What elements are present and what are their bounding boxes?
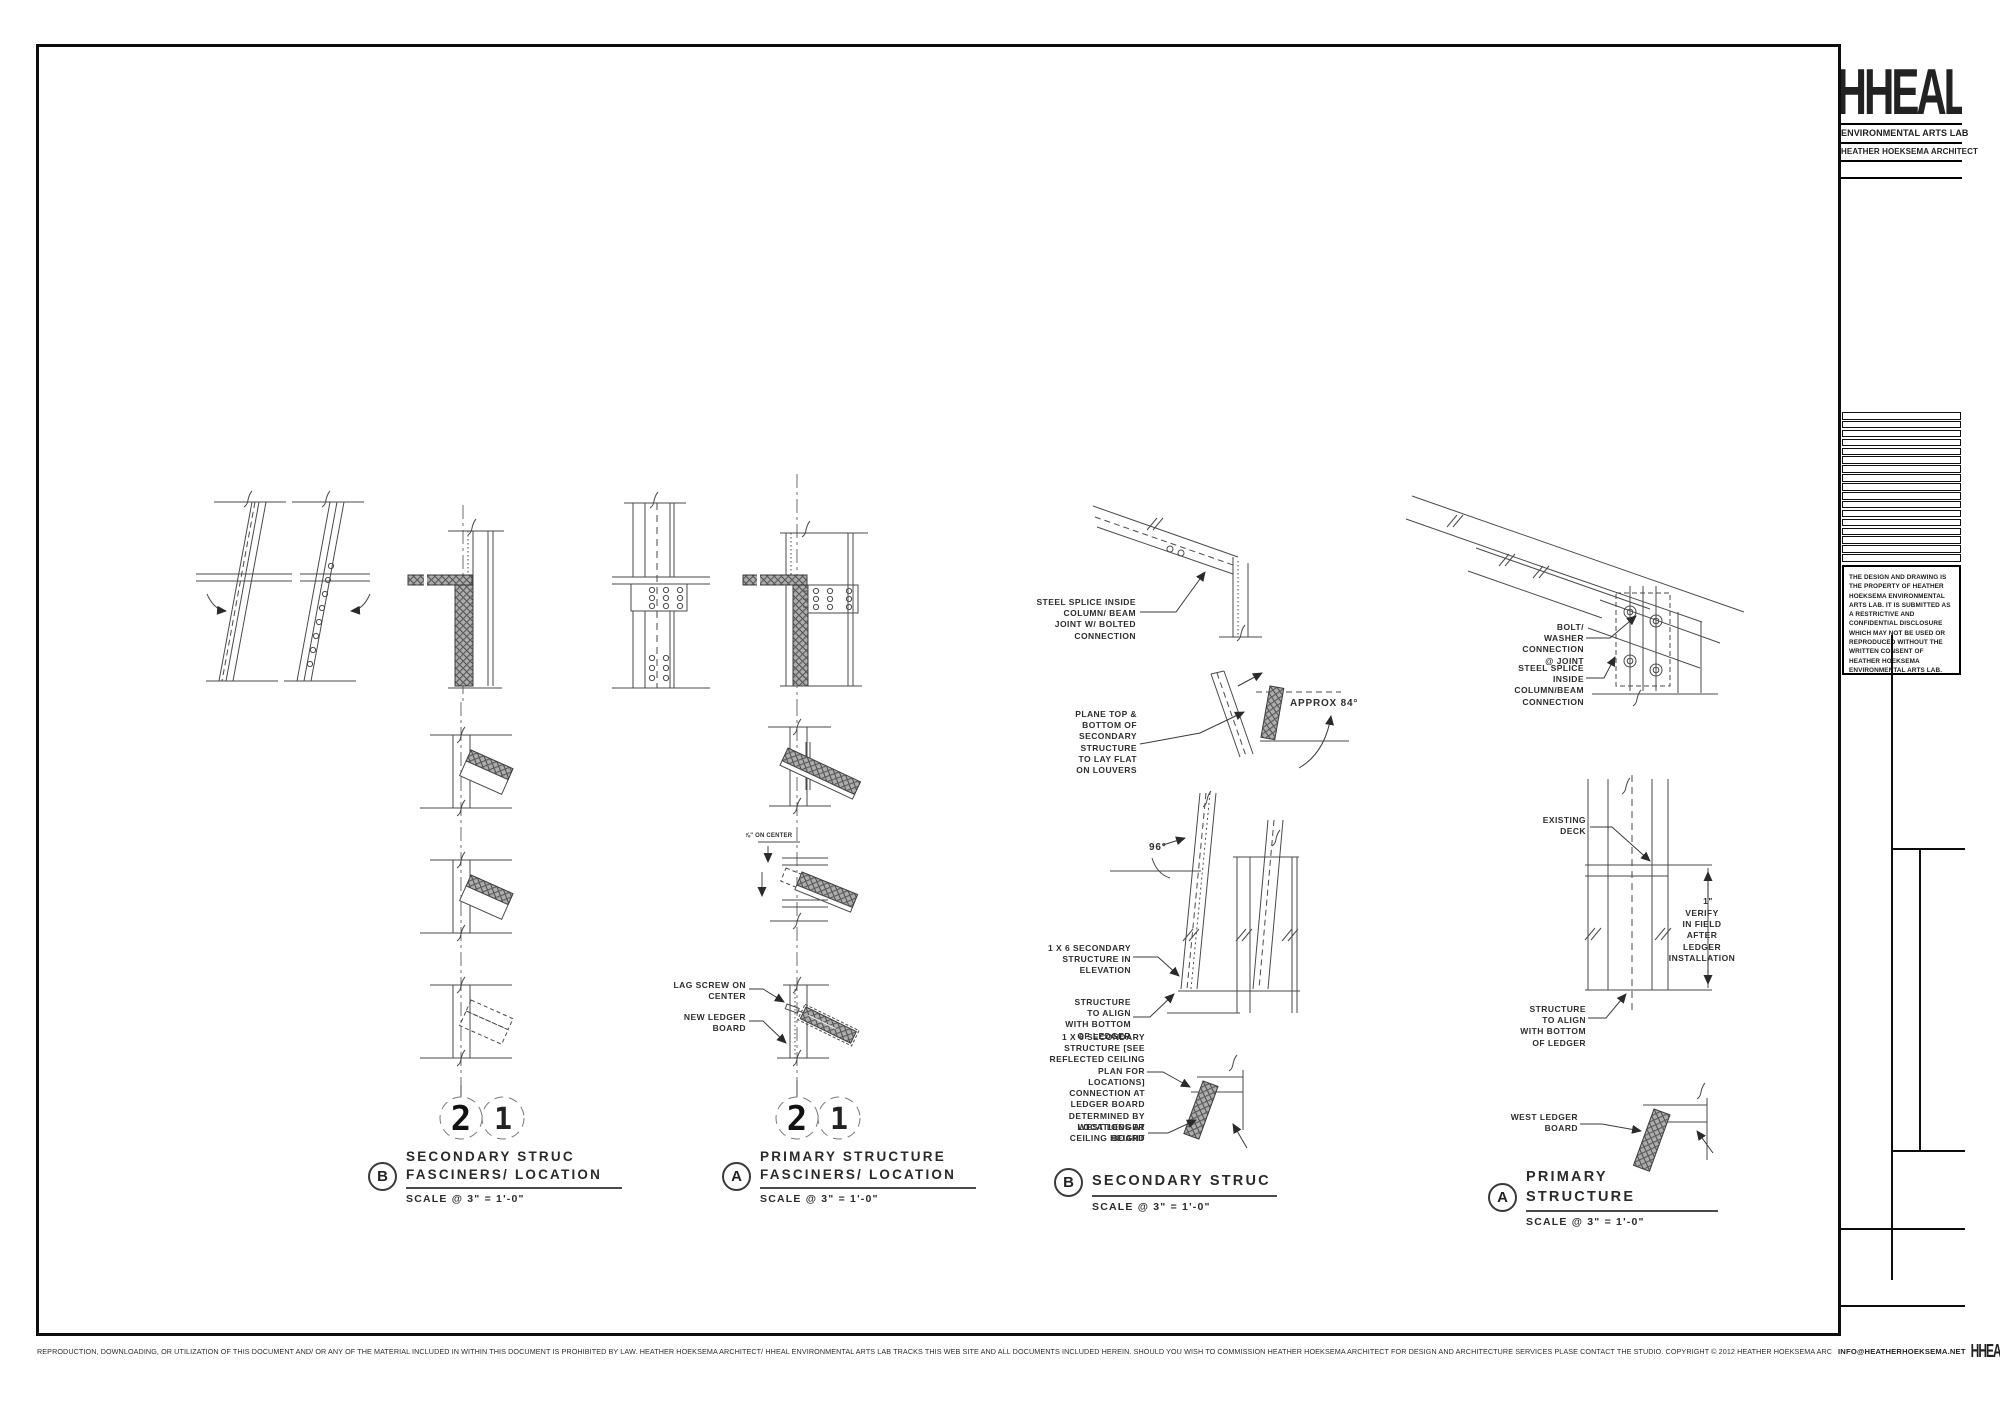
panel-scale-text: SCALE @ 3" = 1'-0": [760, 1193, 976, 1205]
annotation-1-inch-dim: 1": [1692, 896, 1724, 907]
titleblock-divider: [1919, 850, 1921, 1152]
revision-row: [1842, 501, 1961, 509]
revision-row: [1842, 465, 1961, 473]
titleblock-divider: [1841, 1228, 1965, 1230]
drawing-sheet: 2 1: [0, 0, 2000, 1410]
panel-title-text: SECONDARY STRUC FASCINERS/ LOCATION: [406, 1148, 622, 1189]
footer-logo: HHEAL: [1971, 1341, 2000, 1362]
panel-title-text: SECONDARY STRUC: [1092, 1172, 1277, 1197]
titleblock-divider: [1891, 848, 1965, 850]
panel-scale-text: SCALE @ 3" = 1'-0": [1092, 1201, 1277, 1213]
panel-scale-text: SCALE @ 3" = 1'-0": [406, 1193, 622, 1205]
panel1-bubble-1: 1: [494, 1102, 512, 1137]
panel2-linework: 2 1: [612, 474, 868, 1139]
revision-row: [1842, 474, 1961, 482]
annotation-96-degrees: 96°: [1149, 841, 1189, 854]
annotation-west-ledger-p3: WEST LEDGER BOARD: [1070, 1122, 1145, 1144]
revision-row: [1842, 439, 1961, 447]
annotation-lag-screw: LAG SCREW ON CENTER: [640, 980, 746, 1002]
annotation-steel-splice-joint: STEEL SPLICE INSIDE COLUMN/ BEAM JOINT W…: [1018, 597, 1136, 642]
panel-title-primary-structure: A PRIMARY STRUCTURE SCALE @ 3" = 1'-0": [1488, 1168, 1718, 1228]
footer-legal-text: REPRODUCTION, DOWNLOADING, OR UTILIZATIO…: [37, 1347, 1832, 1356]
revision-row: [1842, 492, 1961, 500]
revision-row: [1842, 456, 1961, 464]
panel-title-secondary-fasciners: B SECONDARY STRUC FASCINERS/ LOCATION SC…: [368, 1148, 622, 1205]
ref-letter: A: [731, 1168, 742, 1185]
annotation-new-ledger-board: NEW LEDGER BOARD: [640, 1012, 746, 1034]
ref-letter: A: [1497, 1189, 1508, 1206]
annotation-existing-deck: EXISTING DECK: [1528, 815, 1586, 837]
panel-title-text: PRIMARY STRUCTURE FASCINERS/ LOCATION: [760, 1148, 976, 1189]
footer-email: INFO@HEATHERHOEKSEMA.NET: [1838, 1347, 1966, 1356]
detail-ref-circle-a1: A: [722, 1162, 751, 1191]
panel-title-text: PRIMARY STRUCTURE: [1526, 1168, 1718, 1212]
detail-ref-circle-a2: A: [1488, 1183, 1517, 1212]
revision-row: [1842, 519, 1961, 527]
revision-row: [1842, 528, 1961, 536]
panel2-bubble-1: 1: [830, 1102, 848, 1137]
titleblock-disclaimer: THE DESIGN AND DRAWING IS THE PROPERTY O…: [1842, 565, 1961, 675]
firm-logo-text: HHEAL: [1841, 63, 1962, 123]
revision-row: [1842, 545, 1961, 553]
revision-row: [1842, 430, 1961, 438]
annotation-on-center-dim: ⅞" ON CENTER: [745, 833, 815, 841]
annotation-1x6-elevation: 1 X 6 SECONDARY STRUCTURE IN ELEVATION: [1013, 943, 1131, 977]
detail-ref-circle-b1: B: [368, 1162, 397, 1191]
annotation-west-ledger-p4: WEST LEDGER BOARD: [1500, 1112, 1578, 1134]
footer-contact: INFO@HEATHERHOEKSEMA.NET HHEAL: [1838, 1344, 2000, 1358]
titleblock-revision-rows: [1842, 412, 1961, 563]
architect-name: HEATHER HOEKSEMA ARCHITECT: [1841, 144, 1962, 162]
revision-row: [1842, 510, 1961, 518]
panel1-bubble-2: 2: [451, 1099, 471, 1139]
revision-row: [1842, 412, 1961, 420]
revision-row: [1842, 554, 1961, 562]
panel2-bubble-2: 2: [787, 1099, 807, 1139]
revision-row: [1842, 448, 1961, 456]
annotation-approx-84: APPROX 84°: [1290, 697, 1380, 710]
annotation-plane-top-bottom: PLANE TOP & BOTTOM OF SECONDARY STRUCTUR…: [1045, 709, 1137, 776]
titleblock-divider: [1891, 635, 1893, 1280]
titleblock-empty-row: [1841, 162, 1962, 179]
detail-ref-circle-b2: B: [1054, 1168, 1083, 1197]
ref-letter: B: [1063, 1174, 1074, 1191]
panel-title-secondary-struc: B SECONDARY STRUC SCALE @ 3" = 1'-0": [1054, 1168, 1277, 1213]
annotation-steel-splice-p4: STEEL SPLICE INSIDE COLUMN/BEAM CONNECTI…: [1494, 663, 1584, 708]
ref-letter: B: [377, 1168, 388, 1185]
annotation-bolt-washer: BOLT/ WASHER CONNECTION @ JOINT: [1498, 622, 1584, 667]
titleblock-divider: [1841, 1305, 1965, 1307]
panel-title-primary-fasciners: A PRIMARY STRUCTURE FASCINERS/ LOCATION …: [722, 1148, 976, 1205]
titleblock-divider: [1891, 1150, 1965, 1152]
titleblock: HHEAL ENVIRONMENTAL ARTS LAB HEATHER HOE…: [1838, 44, 1962, 1336]
revision-row: [1842, 536, 1961, 544]
revision-row: [1842, 483, 1961, 491]
panel-scale-text: SCALE @ 3" = 1'-0": [1526, 1216, 1718, 1228]
annotation-verify-in-field: VERIFY IN FIELD AFTER LEDGER INSTALLATIO…: [1658, 908, 1746, 964]
annotation-structure-align-p4: STRUCTURE TO ALIGN WITH BOTTOM OF LEDGER: [1498, 1004, 1586, 1049]
panel1-linework: 2 1: [196, 491, 524, 1139]
firm-logo: HHEAL: [1841, 44, 1962, 125]
firm-name: ENVIRONMENTAL ARTS LAB: [1841, 125, 1962, 144]
revision-row: [1842, 421, 1961, 429]
